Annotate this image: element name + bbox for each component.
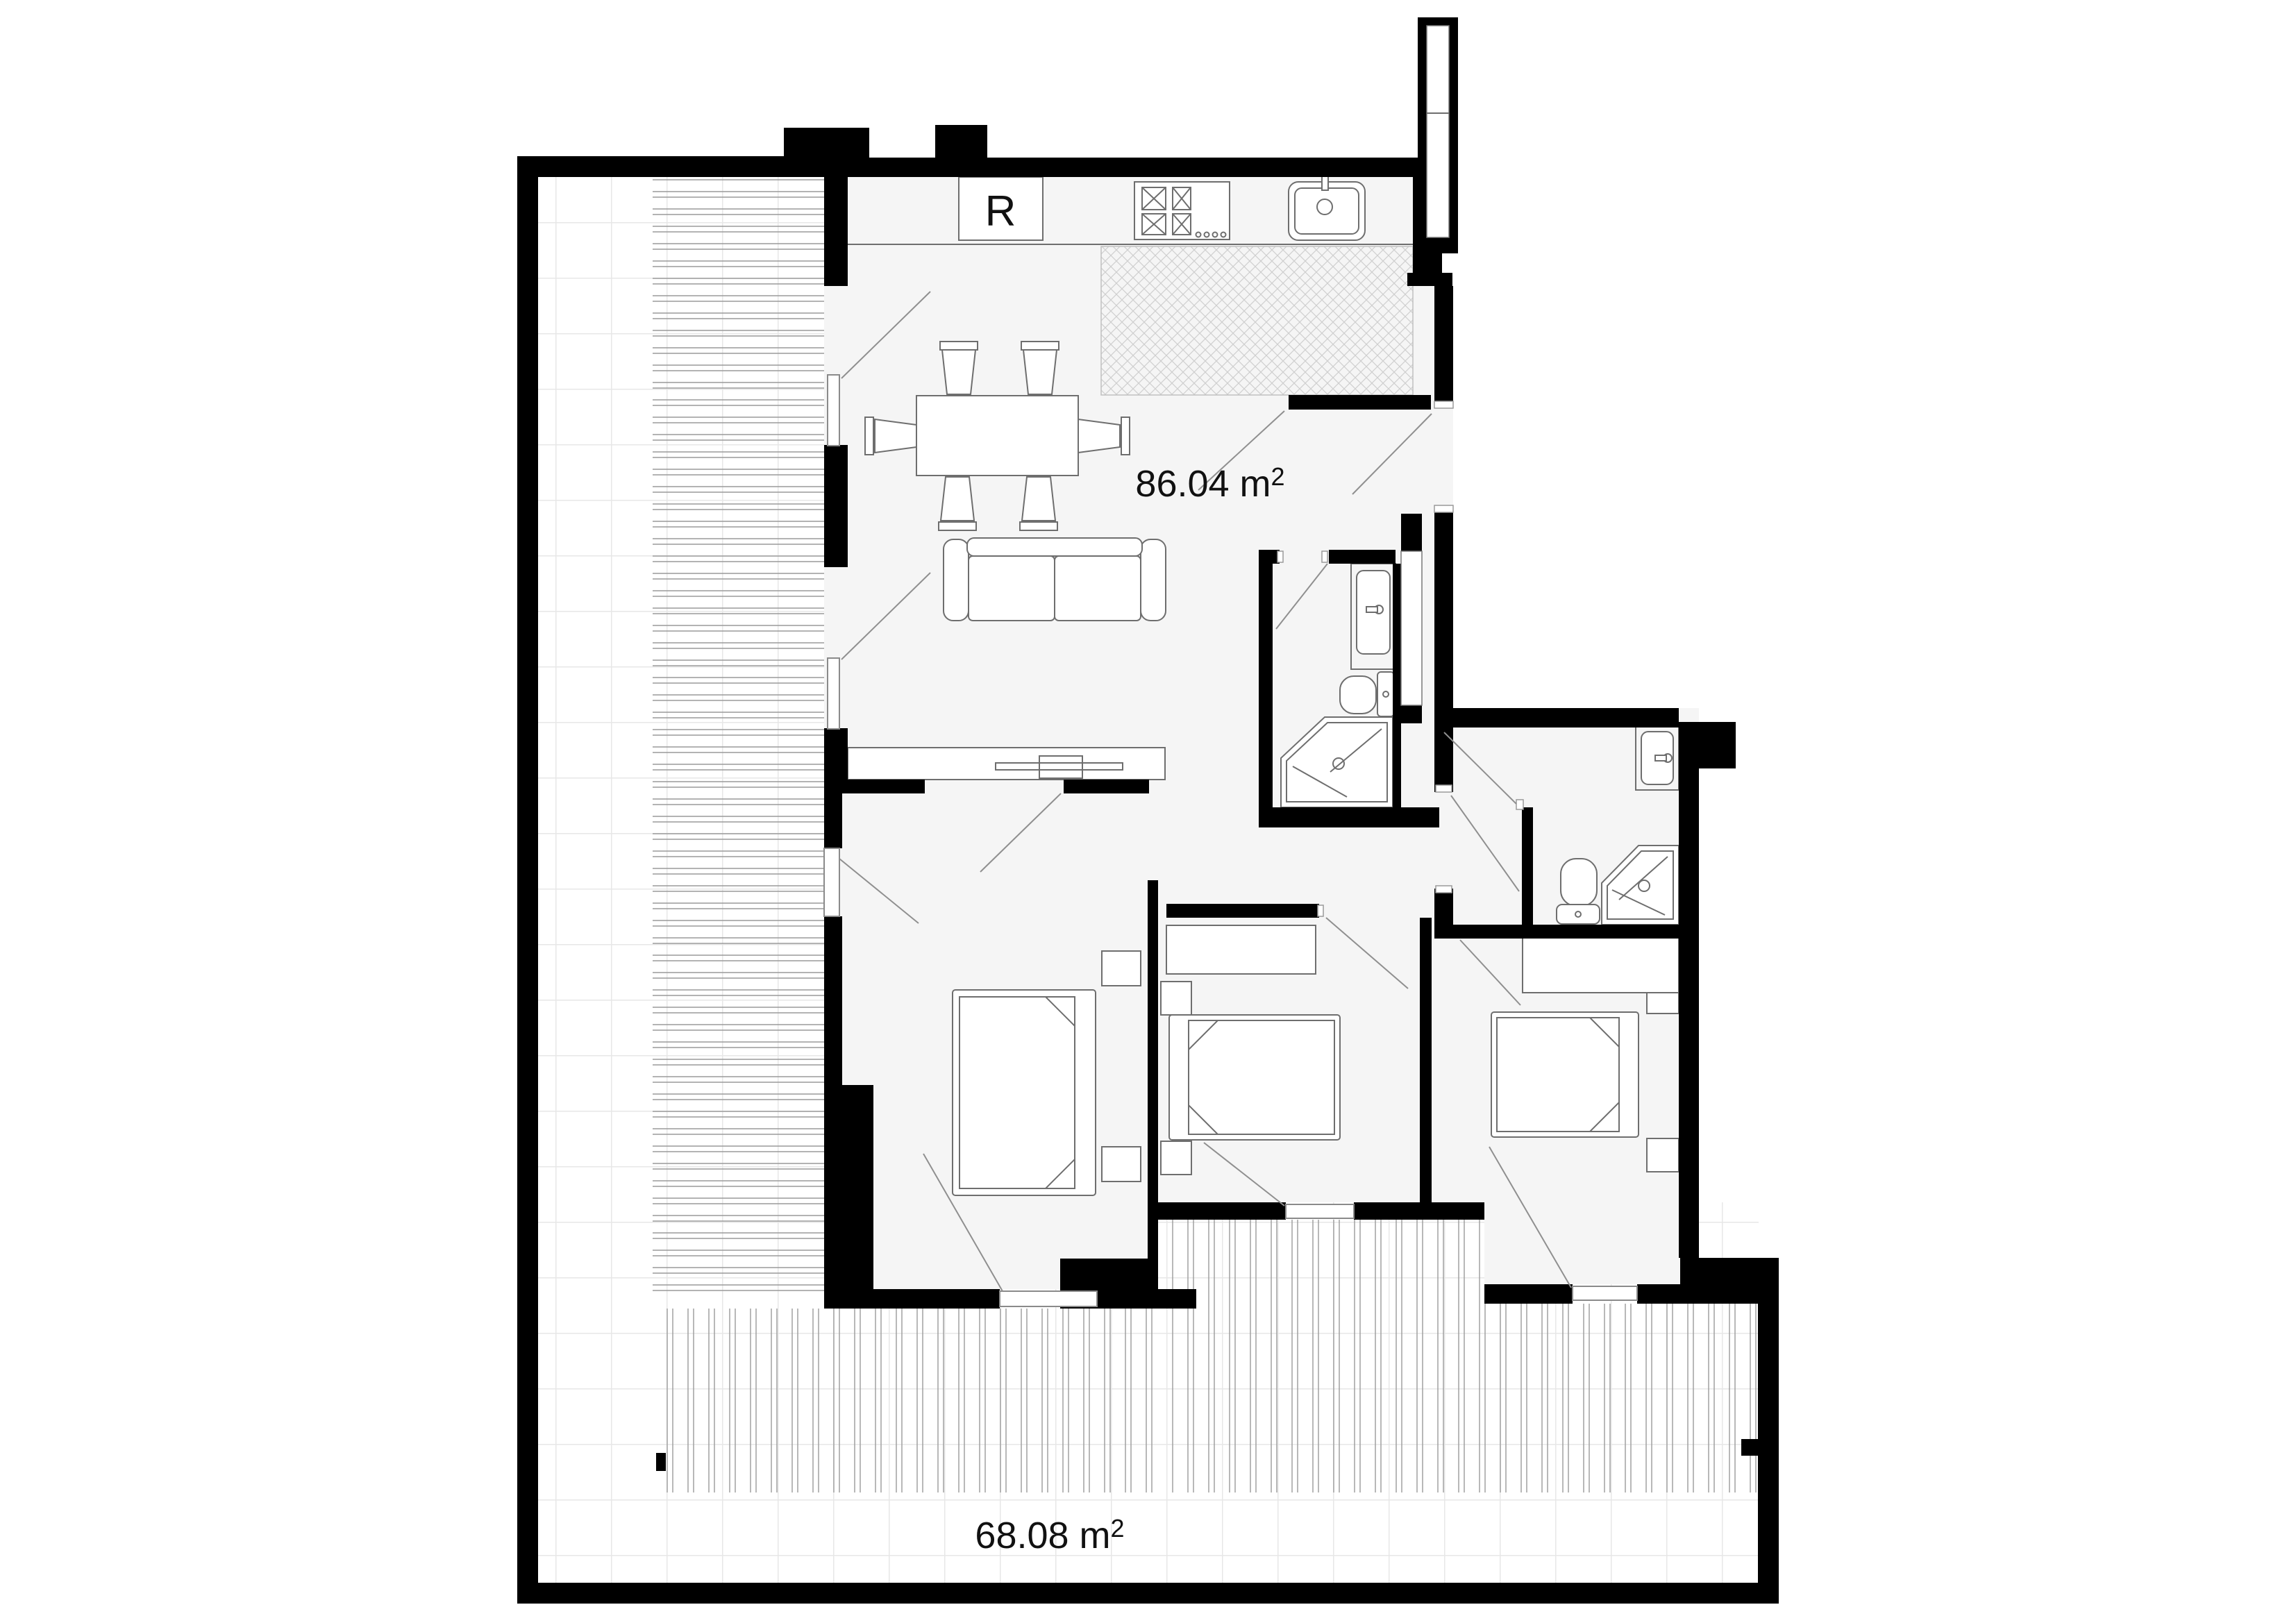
wall-segment	[1758, 1304, 1779, 1604]
stove-icon	[1132, 173, 1233, 239]
wall-segment	[1522, 807, 1533, 925]
tv-console-icon	[848, 748, 1165, 780]
door-jamb	[1436, 785, 1452, 792]
window-icon	[1000, 1291, 1097, 1306]
toilet-tank	[1377, 672, 1394, 716]
wall-segment	[1699, 722, 1736, 768]
wall-segment	[935, 125, 987, 158]
window-icon	[1286, 1204, 1354, 1218]
wardrobe-icon	[1166, 925, 1316, 974]
chair-icon	[940, 342, 978, 394]
duct-shaft-cavity	[1427, 26, 1449, 237]
wall-segment	[1259, 550, 1273, 827]
chair-seat	[942, 350, 975, 394]
door-jamb	[1322, 551, 1327, 562]
window-icon	[824, 848, 839, 916]
wall-segment	[517, 156, 538, 1604]
door-jamb	[1318, 905, 1323, 916]
nightstand-icon	[1102, 951, 1141, 986]
deck-boards-bottom-right	[1484, 1304, 1758, 1492]
wall-segment	[1453, 925, 1522, 939]
area-label-terrace-sup: 2	[1111, 1514, 1125, 1542]
wall-segment	[1354, 1202, 1484, 1220]
floor-plan: R	[0, 0, 2296, 1623]
wall-segment	[1439, 708, 1679, 728]
area-label-living: 86.04 m2	[1135, 462, 1284, 505]
wall-segment	[824, 793, 842, 848]
sofa-cushion	[969, 556, 1055, 621]
sofa-back	[967, 538, 1142, 556]
stove-body	[1134, 182, 1230, 239]
chair-icon	[1078, 417, 1130, 455]
bedroom-2	[1161, 925, 1340, 1175]
chair-back	[1021, 342, 1059, 350]
wall-segment	[1401, 514, 1422, 551]
sofa-cushion	[1055, 556, 1141, 621]
wall-segment	[1158, 1202, 1286, 1220]
tv-screen	[996, 763, 1123, 770]
wardrobe-icon	[1523, 936, 1679, 993]
sink-faucet	[1317, 199, 1332, 215]
wall-segment	[824, 177, 848, 286]
nightstand-icon	[1647, 1138, 1679, 1172]
wall-segment	[824, 728, 848, 780]
chair-back	[940, 342, 978, 350]
hatched-area	[1101, 246, 1413, 395]
deck-boards-bottom-left	[658, 1309, 1158, 1492]
door-jamb	[1434, 505, 1453, 512]
faucet-lever	[1655, 755, 1666, 761]
balcony-door-leaf	[828, 375, 839, 446]
wall-segment	[1158, 1289, 1196, 1309]
wall-segment	[1484, 1284, 1573, 1304]
toilet-bowl	[1561, 859, 1597, 906]
deck-post	[656, 1453, 666, 1471]
dining-table-icon	[916, 396, 1078, 476]
wall-segment	[1522, 925, 1682, 939]
wall-segment	[1259, 807, 1439, 827]
wall-segment	[824, 916, 842, 1085]
wall-segment	[1064, 780, 1149, 793]
chair-back	[865, 417, 873, 455]
sofa-arm	[1141, 539, 1166, 621]
wall-segment	[1434, 889, 1453, 939]
wall-segment	[1401, 705, 1422, 723]
chair-icon	[1021, 342, 1059, 394]
wall-segment	[824, 780, 925, 793]
balcony-door-leaf	[828, 658, 839, 729]
chair-icon	[939, 477, 976, 530]
window-icon	[1573, 1286, 1637, 1300]
door-jamb	[1436, 886, 1452, 893]
nightstand-icon	[1161, 1141, 1191, 1175]
wall-segment	[1148, 880, 1158, 1289]
chair-back	[939, 522, 976, 530]
wall-segment	[517, 156, 826, 177]
wall-segment	[824, 445, 848, 567]
wall-segment	[784, 128, 869, 177]
chair-seat	[1023, 350, 1057, 394]
chair-seat	[1022, 477, 1055, 521]
door-jamb	[1516, 800, 1523, 809]
wall-segment	[1741, 1439, 1759, 1456]
area-label-living-sup: 2	[1271, 462, 1285, 491]
wall-segment	[1166, 904, 1319, 918]
wall-segment	[824, 1085, 873, 1309]
door-jamb	[1434, 401, 1453, 408]
wall-segment	[1434, 507, 1453, 708]
area-label-terrace-value: 68.08 m	[975, 1515, 1110, 1556]
sofa-arm	[944, 539, 969, 621]
nightstand-icon	[1161, 982, 1191, 1015]
chair-back	[1121, 417, 1130, 455]
chair-back	[1020, 522, 1057, 530]
area-label-living-value: 86.04 m	[1135, 463, 1271, 505]
toilet-tank	[1557, 905, 1600, 924]
wall-segment	[1329, 550, 1396, 564]
chair-seat	[1078, 419, 1120, 453]
deck-boards-left	[653, 177, 824, 1295]
toilet-icon	[1557, 859, 1600, 924]
wall-segment	[869, 158, 1433, 177]
wall-segment	[1289, 395, 1431, 410]
wall-segment	[873, 1289, 1000, 1309]
wall-segment	[1679, 722, 1699, 1258]
wall-segment	[1393, 564, 1401, 807]
wall-segment	[1434, 286, 1453, 407]
toilet-bowl	[1340, 676, 1376, 714]
chair-seat	[941, 477, 974, 521]
faucet-lever	[1366, 607, 1377, 612]
toilet-icon	[1340, 672, 1394, 716]
chair-icon	[1020, 477, 1057, 530]
duct-shaft-cavity	[1401, 551, 1422, 705]
chair-seat	[875, 419, 916, 453]
floor-plan-canvas: R	[0, 0, 2296, 1623]
refrigerator-label: R	[985, 187, 1016, 235]
area-label-terrace: 68.08 m2	[975, 1514, 1124, 1556]
door-jamb	[1277, 551, 1283, 562]
sofa-icon	[944, 538, 1166, 621]
deck-boards-bottom-middle	[1172, 1220, 1484, 1492]
nightstand-icon	[1102, 1147, 1141, 1181]
wall-segment	[1637, 1284, 1759, 1304]
wall-segment	[1420, 918, 1432, 1202]
wall-segment	[517, 1583, 1779, 1604]
